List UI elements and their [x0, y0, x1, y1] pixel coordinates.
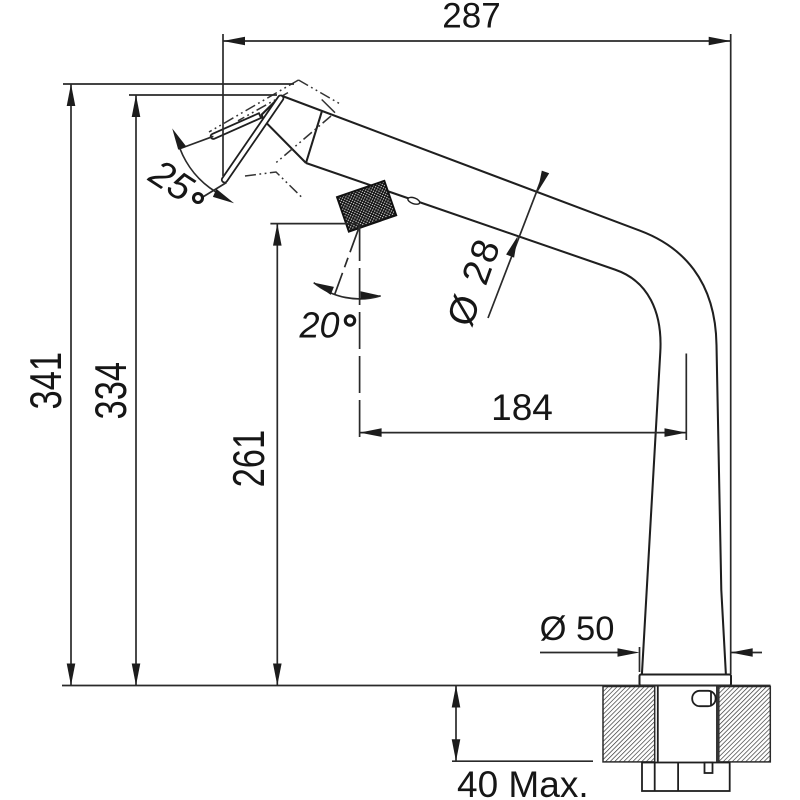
svg-text:20: 20	[298, 305, 339, 346]
svg-text:287: 287	[442, 0, 500, 36]
svg-text:341: 341	[22, 352, 71, 410]
svg-text:40 Max.: 40 Max.	[457, 764, 589, 800]
svg-text:Ø 50: Ø 50	[540, 610, 615, 648]
svg-text:261: 261	[225, 430, 274, 488]
svg-text:184: 184	[491, 387, 553, 428]
svg-text:334: 334	[87, 362, 136, 420]
